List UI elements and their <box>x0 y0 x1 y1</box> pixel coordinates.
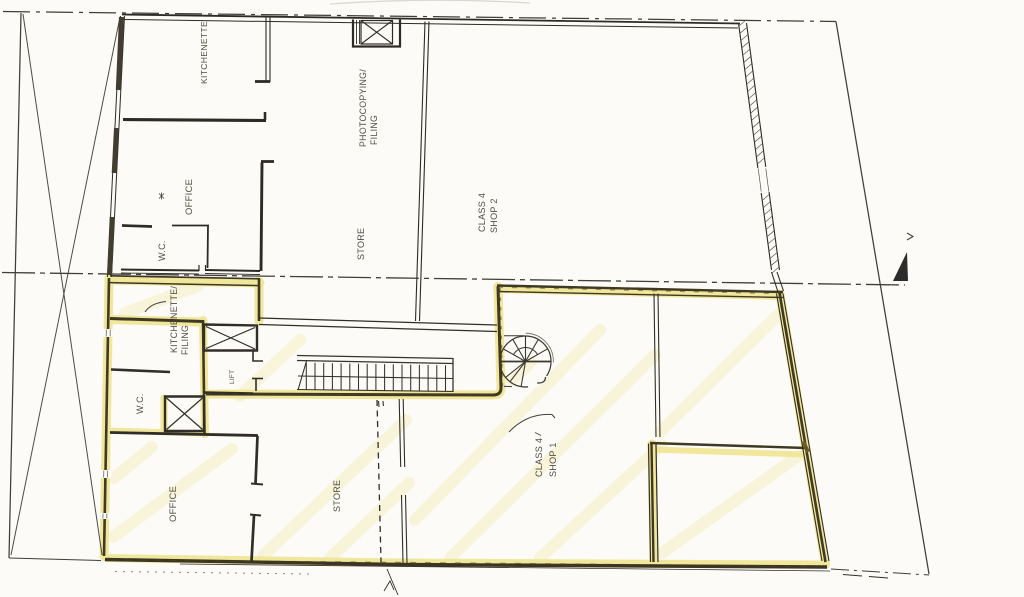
svg-text:W.C.: W.C. <box>135 393 145 414</box>
svg-text:STORE: STORE <box>356 228 366 260</box>
svg-text:PHOTOCOPYING/: PHOTOCOPYING/ <box>358 69 368 147</box>
svg-text:SHOP 2: SHOP 2 <box>489 198 499 233</box>
svg-text:FILING: FILING <box>369 115 379 145</box>
svg-text:OFFICE: OFFICE <box>183 179 194 215</box>
svg-text:OFFICE: OFFICE <box>167 486 178 522</box>
svg-text:FILING: FILING <box>180 325 190 355</box>
svg-text:CLASS 4: CLASS 4 <box>534 438 544 477</box>
svg-text:SHOP 1: SHOP 1 <box>548 442 558 477</box>
svg-text:W.C.: W.C. <box>157 240 167 261</box>
svg-text:KITCHENETTE: KITCHENETTE <box>199 21 209 84</box>
svg-text:CLASS 4: CLASS 4 <box>477 193 487 232</box>
svg-text:STORE: STORE <box>332 480 342 512</box>
svg-text:LIFT: LIFT <box>229 370 236 384</box>
svg-text:KITCHENETTE/: KITCHENETTE/ <box>169 286 179 353</box>
